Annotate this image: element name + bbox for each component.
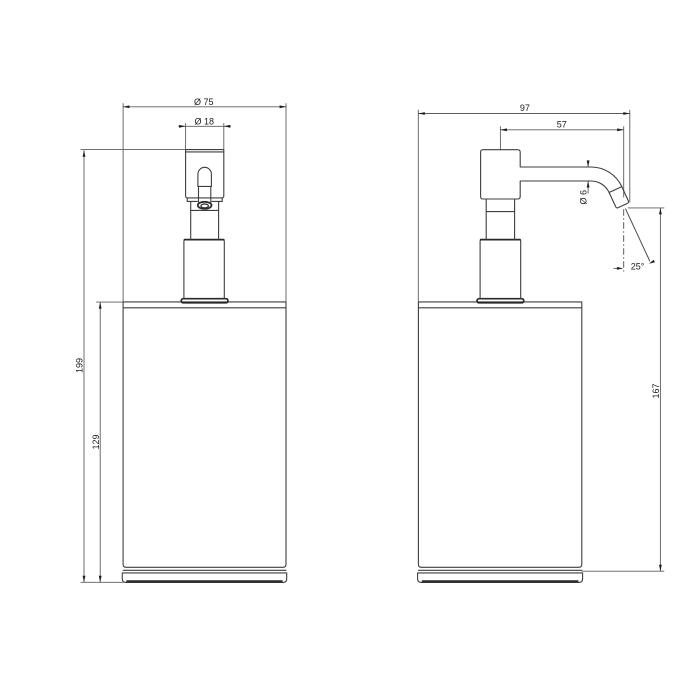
svg-text:167: 167: [651, 383, 661, 398]
svg-text:97: 97: [520, 103, 530, 113]
svg-text:199: 199: [75, 358, 85, 373]
svg-text:25°: 25°: [631, 262, 645, 272]
svg-text:Ø 6: Ø 6: [578, 190, 588, 205]
svg-text:57: 57: [557, 120, 567, 130]
svg-text:129: 129: [91, 434, 101, 449]
svg-text:Ø 18: Ø 18: [194, 116, 214, 126]
svg-text:Ø 75: Ø 75: [194, 97, 214, 107]
